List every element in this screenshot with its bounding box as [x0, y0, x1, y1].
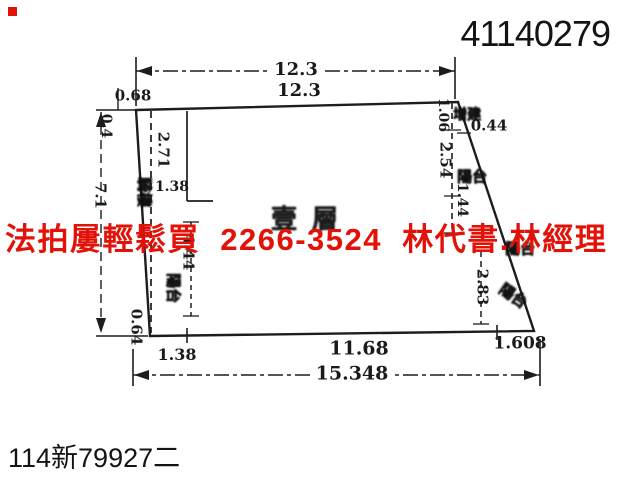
arrow-left-icon [137, 66, 152, 76]
dim-label-bottom-right: 1.608 [493, 336, 546, 353]
arrow-right-icon [439, 66, 454, 76]
scanned-survey-page: 12.3 12.3 0.68 0.4 7.1 2.71 1.38 4.44 0.… [0, 0, 631, 480]
advertisement-overlay-text: 法拍屢輕鬆買 2266-3524 林代書.林經理 [5, 214, 607, 259]
balcony-right-mid-annotation: 陽台 [457, 170, 487, 185]
dim-label-right-seg3: 1.44 [455, 183, 469, 217]
dim-label-left-small: 0.4 [99, 114, 113, 138]
dim-label-top-edge: 12.3 [277, 82, 321, 100]
dim-label-bottom-total: 15.348 [312, 365, 393, 384]
dim-label-right-seg4: 2.83 [475, 269, 490, 306]
red-marker-square [8, 7, 17, 16]
dim-label-left-offset: 0.68 [115, 89, 152, 104]
dim-label-right-seg2: 2.54 [438, 142, 453, 179]
dim-label-left-total: 7.1 [93, 183, 108, 209]
dim-label-bottom-left: 1.38 [158, 347, 197, 363]
dim-label-bottom-mid: 11.68 [329, 340, 389, 359]
dim-label-inner-width: 1.38 [155, 180, 189, 194]
dim-label-left-bottom: 0.64 [129, 309, 144, 346]
dim-label-inner-height: 2.71 [156, 132, 171, 169]
dim-label-top-total: 12.3 [270, 61, 322, 79]
case-number: 114新79927二 [8, 436, 180, 475]
balcony-left-annotation: 陽台 [166, 273, 181, 303]
extension-annotation: 增建 [453, 108, 481, 122]
document-number: 41140279 [461, 13, 611, 55]
arcade-annotation: 騎樓 [137, 177, 152, 207]
dim-label-right-seg1: 1.06 [436, 98, 450, 132]
